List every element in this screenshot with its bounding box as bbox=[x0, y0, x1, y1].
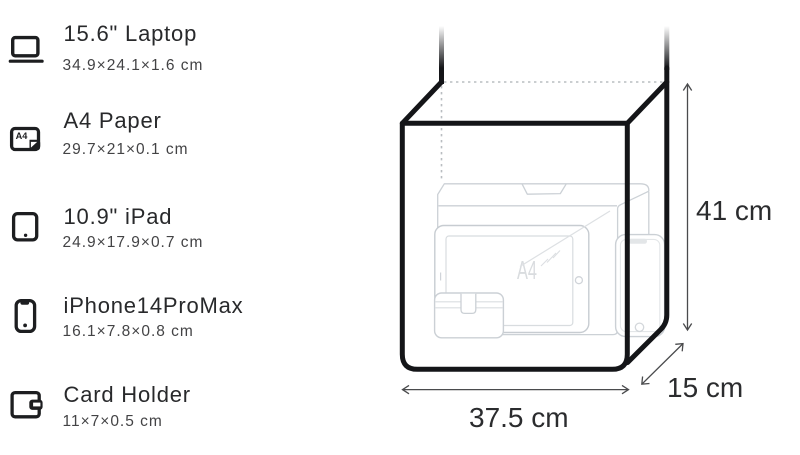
svg-text:A4: A4 bbox=[517, 255, 537, 285]
